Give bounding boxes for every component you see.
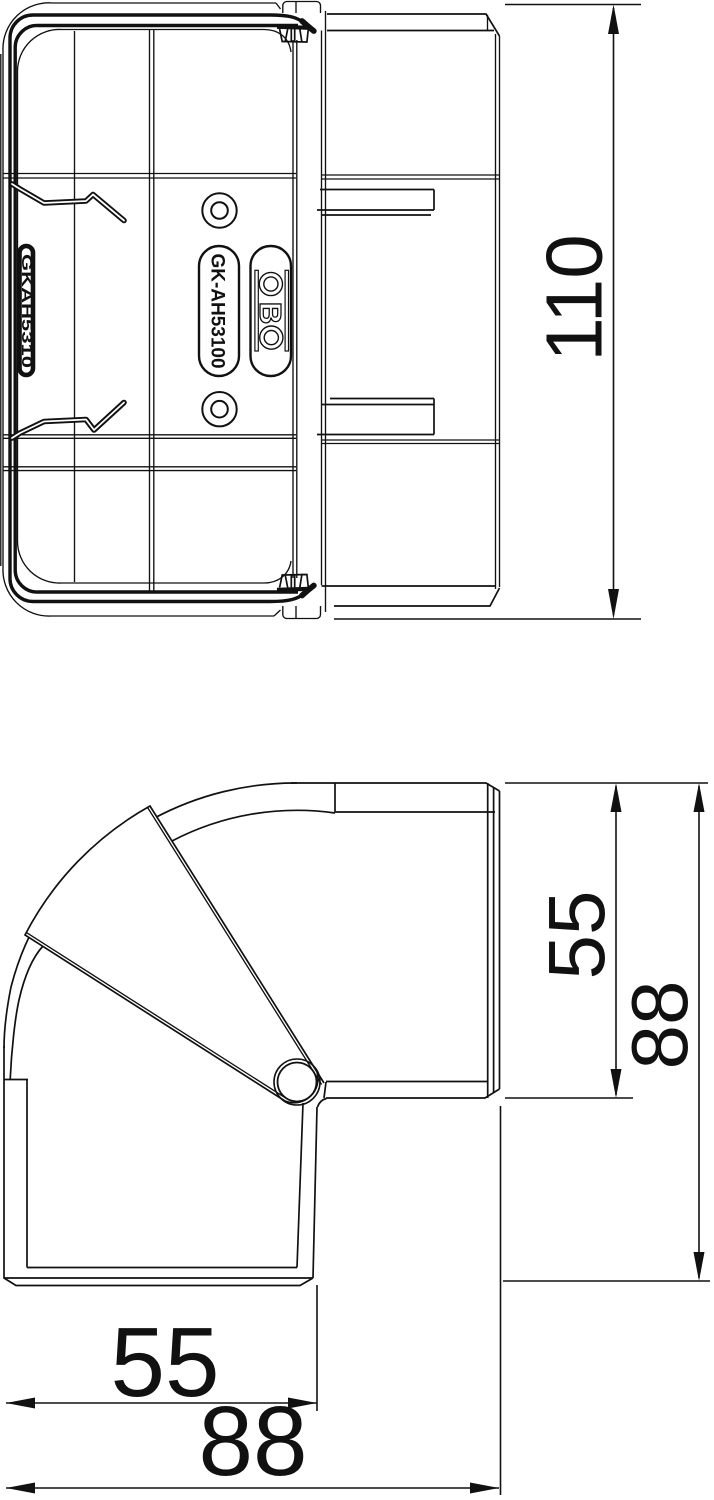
- svg-text:B: B: [253, 302, 288, 324]
- svg-text:88: 88: [615, 981, 704, 1070]
- svg-text:GKAH5310: GKAH5310: [18, 254, 35, 368]
- svg-text:88: 88: [198, 1386, 307, 1496]
- svg-text:110: 110: [530, 234, 619, 362]
- svg-text:55: 55: [532, 891, 621, 980]
- svg-text:GK-AH53100: GK-AH53100: [207, 253, 228, 368]
